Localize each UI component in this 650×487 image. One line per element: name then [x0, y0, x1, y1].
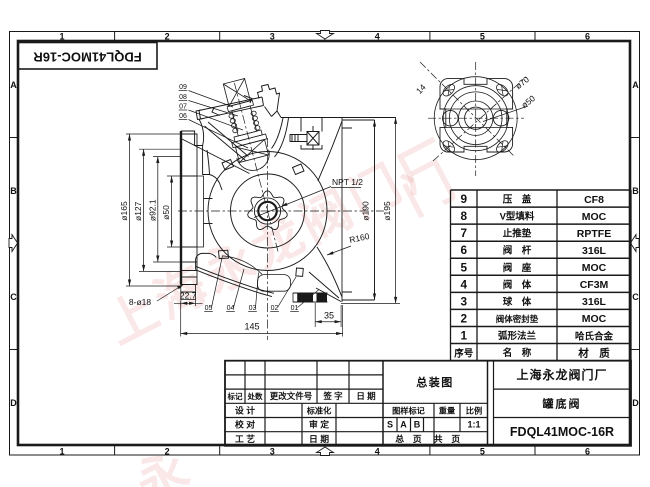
svg-text:ø127: ø127 — [133, 201, 143, 221]
svg-text:316L: 316L — [582, 296, 607, 308]
svg-text:CF3M: CF3M — [580, 279, 609, 291]
svg-text:永: 永 — [127, 441, 197, 487]
svg-text:4: 4 — [461, 277, 468, 291]
svg-text:工 艺: 工 艺 — [235, 433, 255, 444]
svg-text:2: 2 — [165, 32, 170, 42]
svg-text:22.7: 22.7 — [180, 290, 197, 300]
svg-text:4: 4 — [375, 447, 380, 457]
svg-text:重量: 重量 — [439, 405, 455, 415]
svg-text:D: D — [632, 398, 639, 408]
svg-text:04: 04 — [227, 305, 235, 312]
svg-text:05: 05 — [205, 305, 213, 312]
svg-text:处数: 处数 — [247, 391, 263, 401]
svg-text:6: 6 — [585, 32, 590, 42]
svg-text:7: 7 — [461, 226, 468, 240]
svg-text:阀 体: 阀 体 — [503, 279, 532, 291]
svg-text:09: 09 — [179, 84, 187, 91]
svg-text:阀 座: 阀 座 — [503, 262, 532, 274]
svg-text:签 字: 签 字 — [322, 391, 343, 401]
svg-text:哈氏合金: 哈氏合金 — [575, 330, 614, 342]
svg-text:校 对: 校 对 — [235, 419, 255, 430]
svg-text:CF8: CF8 — [584, 194, 604, 206]
svg-text:3: 3 — [461, 294, 468, 308]
svg-text:07: 07 — [179, 104, 187, 111]
svg-text:6: 6 — [461, 243, 468, 257]
svg-text:B: B — [414, 420, 421, 430]
svg-text:145: 145 — [244, 322, 259, 332]
svg-text:3: 3 — [270, 32, 275, 42]
svg-text:5: 5 — [480, 32, 485, 42]
svg-text:图样标记: 图样标记 — [392, 405, 426, 415]
svg-text:共 页: 共 页 — [434, 433, 461, 444]
svg-text:6: 6 — [585, 447, 590, 457]
svg-text:止推垫: 止推垫 — [503, 228, 532, 240]
svg-text:标记: 标记 — [227, 391, 243, 401]
svg-text:1: 1 — [59, 32, 64, 42]
svg-text:8: 8 — [461, 209, 468, 223]
svg-text:14: 14 — [414, 82, 428, 96]
svg-text:4: 4 — [375, 32, 380, 42]
svg-text:ø195: ø195 — [382, 201, 392, 221]
svg-text:总 页: 总 页 — [395, 433, 422, 444]
svg-text:罐底阀: 罐底阀 — [542, 396, 582, 410]
svg-text:标准化: 标准化 — [306, 405, 332, 415]
svg-text:01: 01 — [291, 305, 299, 312]
svg-text:V型填料: V型填料 — [500, 211, 535, 223]
svg-text:5: 5 — [461, 260, 468, 274]
svg-text:3: 3 — [270, 447, 275, 457]
svg-text:上海永龙阀门厂: 上海永龙阀门厂 — [516, 367, 607, 382]
svg-text:1: 1 — [461, 329, 468, 343]
svg-text:A: A — [632, 80, 639, 90]
svg-text:总装图: 总装图 — [416, 375, 454, 389]
svg-text:ø92.1: ø92.1 — [147, 199, 157, 221]
svg-text:ø70: ø70 — [513, 74, 531, 91]
svg-text:D: D — [10, 398, 17, 408]
svg-text:NPT 1/2: NPT 1/2 — [332, 177, 363, 187]
svg-text:2: 2 — [461, 311, 468, 325]
svg-text:RPTFE: RPTFE — [577, 228, 611, 240]
svg-text:1:1: 1:1 — [467, 420, 480, 430]
svg-text:ø50: ø50 — [519, 93, 537, 110]
svg-text:ø165: ø165 — [119, 201, 129, 221]
svg-text:B: B — [10, 186, 17, 196]
svg-text:35: 35 — [324, 311, 334, 321]
svg-text:名 称: 名 称 — [503, 347, 532, 359]
svg-text:阀体密封垫: 阀体密封垫 — [496, 314, 539, 324]
svg-text:5: 5 — [480, 447, 485, 457]
svg-text:阀 杆: 阀 杆 — [503, 245, 532, 257]
svg-text:ø190: ø190 — [361, 201, 371, 221]
svg-text:更改文件号: 更改文件号 — [270, 391, 313, 401]
svg-text:压 盖: 压 盖 — [503, 194, 532, 206]
svg-text:316L: 316L — [582, 245, 607, 257]
svg-text:球 体: 球 体 — [503, 296, 532, 308]
svg-text:序号: 序号 — [454, 348, 474, 360]
svg-text:材 质: 材 质 — [577, 346, 610, 359]
svg-text:06: 06 — [179, 113, 187, 120]
svg-text:B: B — [632, 186, 639, 196]
svg-text:ø50: ø50 — [161, 205, 171, 220]
svg-text:审 定: 审 定 — [309, 419, 329, 430]
svg-text:C: C — [632, 292, 639, 302]
svg-text:S: S — [387, 420, 393, 430]
svg-text:MOC: MOC — [582, 262, 607, 274]
svg-text:日 期: 日 期 — [309, 433, 329, 444]
svg-text:日 期: 日 期 — [356, 391, 376, 401]
svg-text:2: 2 — [165, 447, 170, 457]
svg-text:MOC: MOC — [582, 313, 607, 325]
svg-text:比例: 比例 — [466, 405, 482, 415]
svg-text:8-ø18: 8-ø18 — [129, 297, 151, 307]
svg-text:FDQL41MOC-16R: FDQL41MOC-16R — [33, 49, 142, 64]
svg-text:上海永龙阀门厂: 上海永龙阀门厂 — [97, 131, 458, 355]
svg-text:C: C — [10, 292, 17, 302]
svg-text:设 计: 设 计 — [235, 404, 255, 415]
svg-text:A: A — [10, 80, 17, 90]
svg-text:A: A — [400, 420, 407, 430]
svg-text:9: 9 — [461, 192, 468, 206]
svg-text:02: 02 — [271, 305, 279, 312]
svg-text:弧形法兰: 弧形法兰 — [498, 330, 537, 342]
svg-text:1: 1 — [59, 447, 64, 457]
svg-text:08: 08 — [179, 94, 187, 101]
svg-text:MOC: MOC — [582, 211, 607, 223]
svg-text:FDQL41MOC-16R: FDQL41MOC-16R — [510, 425, 614, 439]
